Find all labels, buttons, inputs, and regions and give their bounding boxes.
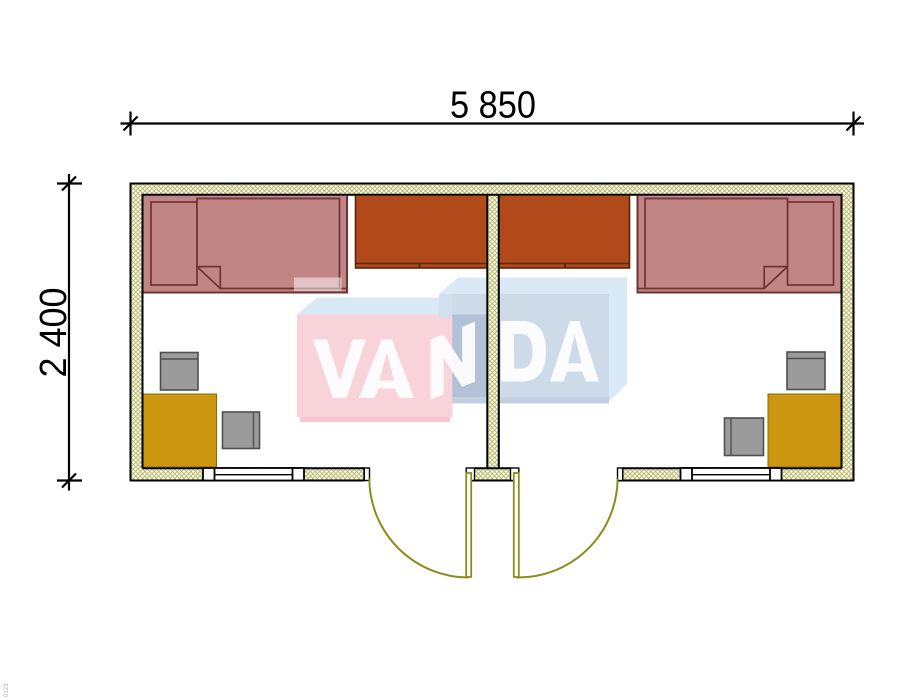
svg-text:0123: 0123: [4, 683, 10, 697]
svg-text:2 400: 2 400: [33, 288, 75, 378]
svg-text:5 850: 5 850: [450, 85, 536, 127]
